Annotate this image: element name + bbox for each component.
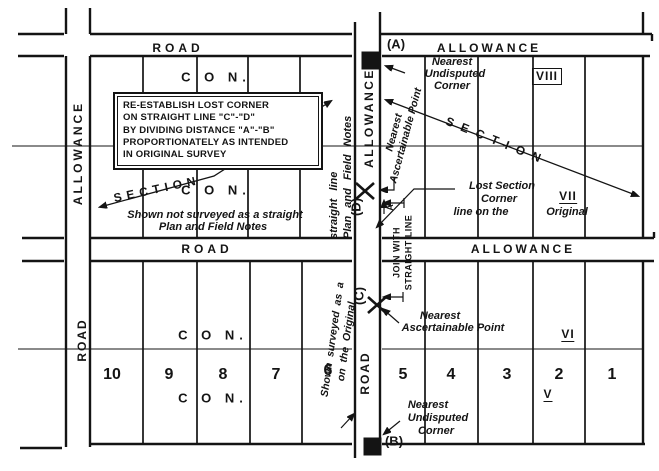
road-central-label: ROAD bbox=[358, 351, 372, 394]
square-marker-a bbox=[362, 52, 380, 69]
lot-number: 10 bbox=[103, 366, 121, 384]
nearest-undisputed-top-line1: Nearest bbox=[432, 56, 472, 68]
nearest-undisputed-top-line3: Corner bbox=[434, 80, 470, 92]
note-line: BY DIVIDING DISTANCE "A"-"B" bbox=[123, 125, 314, 137]
allowance-left-label: ALLOWANCE bbox=[71, 101, 85, 205]
allowance-middle-label: ALLOWANCE bbox=[471, 242, 575, 256]
lost-corner-line1: Lost Section bbox=[469, 180, 535, 192]
note-line: RE-ESTABLISH LOST CORNER bbox=[123, 100, 314, 112]
nearest-undisputed-bottom-line3: Corner bbox=[418, 425, 454, 437]
lot-number: 2 bbox=[555, 366, 564, 384]
point-b-label: (B) bbox=[385, 434, 403, 449]
road-top-label: ROAD bbox=[152, 41, 203, 55]
lot-number: 4 bbox=[447, 366, 456, 384]
nearest-ascertainable-bottom-line2: Ascertainable Point bbox=[402, 322, 505, 334]
lost-corner-line2: Corner bbox=[481, 193, 517, 205]
numeral-v: V bbox=[543, 387, 552, 402]
leader-undisputed-top bbox=[386, 66, 405, 73]
concession-label-bottom-lower: C O N. bbox=[178, 391, 248, 406]
lost-corner-line3: line on the bbox=[454, 206, 509, 218]
point-a-label: (A) bbox=[387, 37, 405, 52]
lot-number: 5 bbox=[399, 366, 408, 384]
numeral-vi: VI bbox=[561, 327, 574, 342]
nearest-undisputed-bottom-line1: Nearest bbox=[408, 399, 448, 411]
lot-number: 1 bbox=[608, 366, 617, 384]
survey-diagram: RE-ESTABLISH LOST CORNER ON STRAIGHT LIN… bbox=[0, 0, 659, 471]
x-marker-c bbox=[368, 297, 386, 313]
lot-number: 9 bbox=[165, 366, 174, 384]
allowance-top-label: ALLOWANCE bbox=[437, 41, 541, 55]
nearest-undisputed-top-line2: Undisputed bbox=[425, 68, 486, 80]
straight-plan-line2: Plan and Field Notes bbox=[341, 67, 355, 239]
concession-label-bottom-upper: C O N. bbox=[178, 328, 248, 343]
instruction-note-box: RE-ESTABLISH LOST CORNER ON STRAIGHT LIN… bbox=[113, 92, 323, 170]
square-marker-b bbox=[364, 438, 381, 455]
note-line: IN ORIGINAL SURVEY bbox=[123, 149, 314, 161]
nearest-ascertainable-bottom-line1: Nearest bbox=[420, 310, 460, 322]
leader-undisputed-bottom bbox=[384, 421, 400, 434]
note-line: PROPORTIONATELY AS INTENDED bbox=[123, 137, 314, 149]
numeral-vii: VII bbox=[559, 189, 577, 204]
numeral-viii: VIII bbox=[532, 68, 562, 85]
straight-plan-line1: straight line bbox=[327, 67, 341, 239]
lot-number: 8 bbox=[219, 366, 228, 384]
road-middle-label: ROAD bbox=[181, 242, 232, 256]
lot-number: 7 bbox=[272, 366, 281, 384]
concession-label-top-upper: C O N. bbox=[181, 70, 251, 85]
shown-not-line2: Plan and Field Notes bbox=[159, 221, 267, 233]
lost-corner-line4: Original bbox=[546, 206, 588, 218]
join-with-line2: STRAIGHT LINE bbox=[403, 206, 415, 300]
allowance-central-label: ALLOWANCE bbox=[362, 68, 376, 168]
nearest-undisputed-bottom-line2: Undisputed bbox=[408, 412, 469, 424]
shown-not-line1: Shown not surveyed as a straight bbox=[127, 209, 302, 221]
x-marker-d bbox=[356, 183, 374, 199]
road-left-label: ROAD bbox=[75, 318, 89, 361]
note-line: ON STRAIGHT LINE "C"-"D" bbox=[123, 112, 314, 124]
lot-number: 3 bbox=[503, 366, 512, 384]
join-with-line1: JOIN WITH bbox=[392, 206, 404, 300]
